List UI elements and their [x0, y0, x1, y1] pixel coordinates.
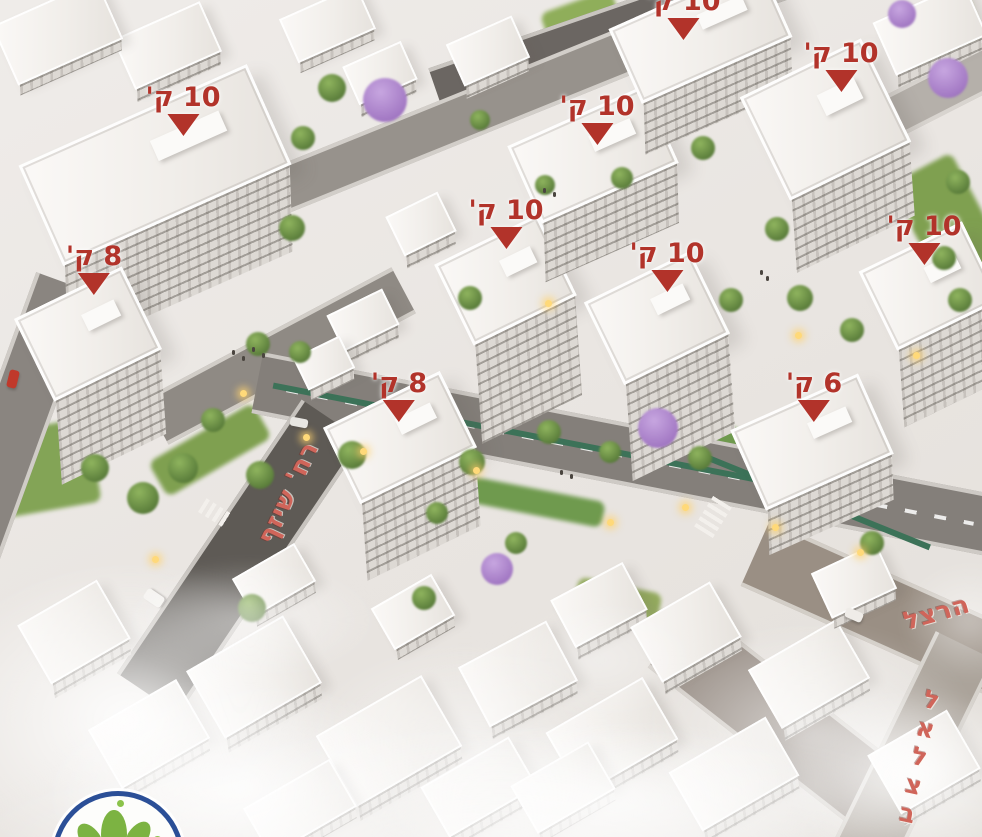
logo-layer [0, 0, 982, 837]
logo-leaf-icon [117, 800, 124, 807]
urban-renewal-rendering: רח' שיזףהרצלרח' בצלאל 10 ק'10 ק'10 ק'10 … [0, 0, 982, 837]
developer-logo [52, 791, 184, 837]
logo-leaf-icon [101, 810, 127, 837]
logo-leaf-icon [122, 817, 156, 837]
